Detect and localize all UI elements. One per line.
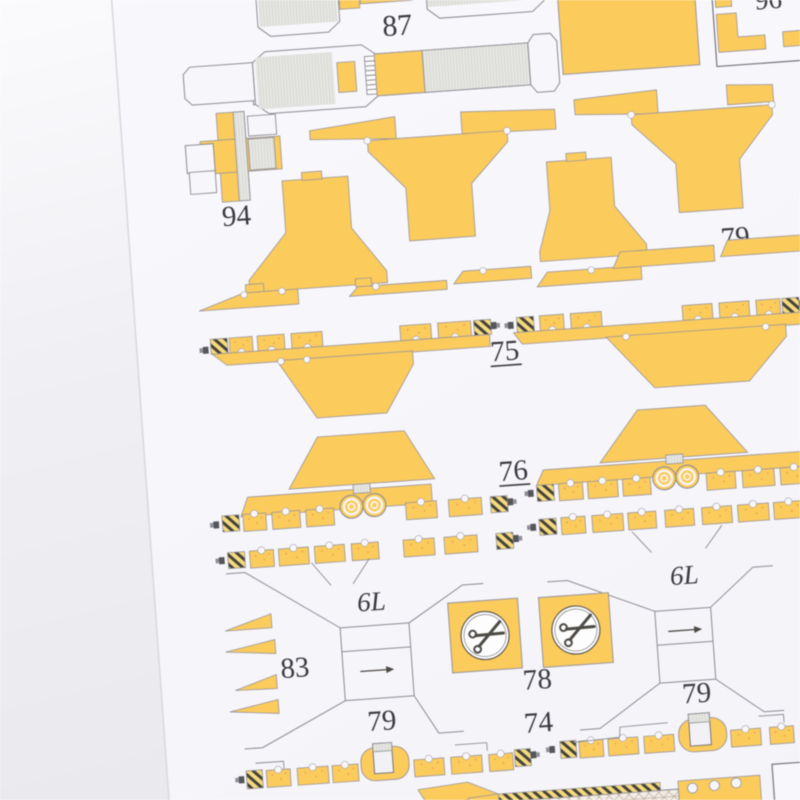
svg-text:83: 83 — [279, 651, 310, 685]
svg-text:96: 96 — [754, 0, 783, 16]
svg-text:79: 79 — [366, 704, 397, 738]
svg-text:74: 74 — [523, 706, 555, 740]
svg-text:76: 76 — [498, 454, 529, 488]
svg-text:6L: 6L — [669, 559, 700, 591]
svg-text:79: 79 — [681, 677, 712, 711]
svg-text:6L: 6L — [356, 586, 387, 618]
svg-text:75: 75 — [489, 334, 520, 368]
svg-text:78: 78 — [522, 663, 553, 697]
svg-text:87: 87 — [381, 8, 413, 43]
svg-text:94: 94 — [221, 199, 253, 233]
